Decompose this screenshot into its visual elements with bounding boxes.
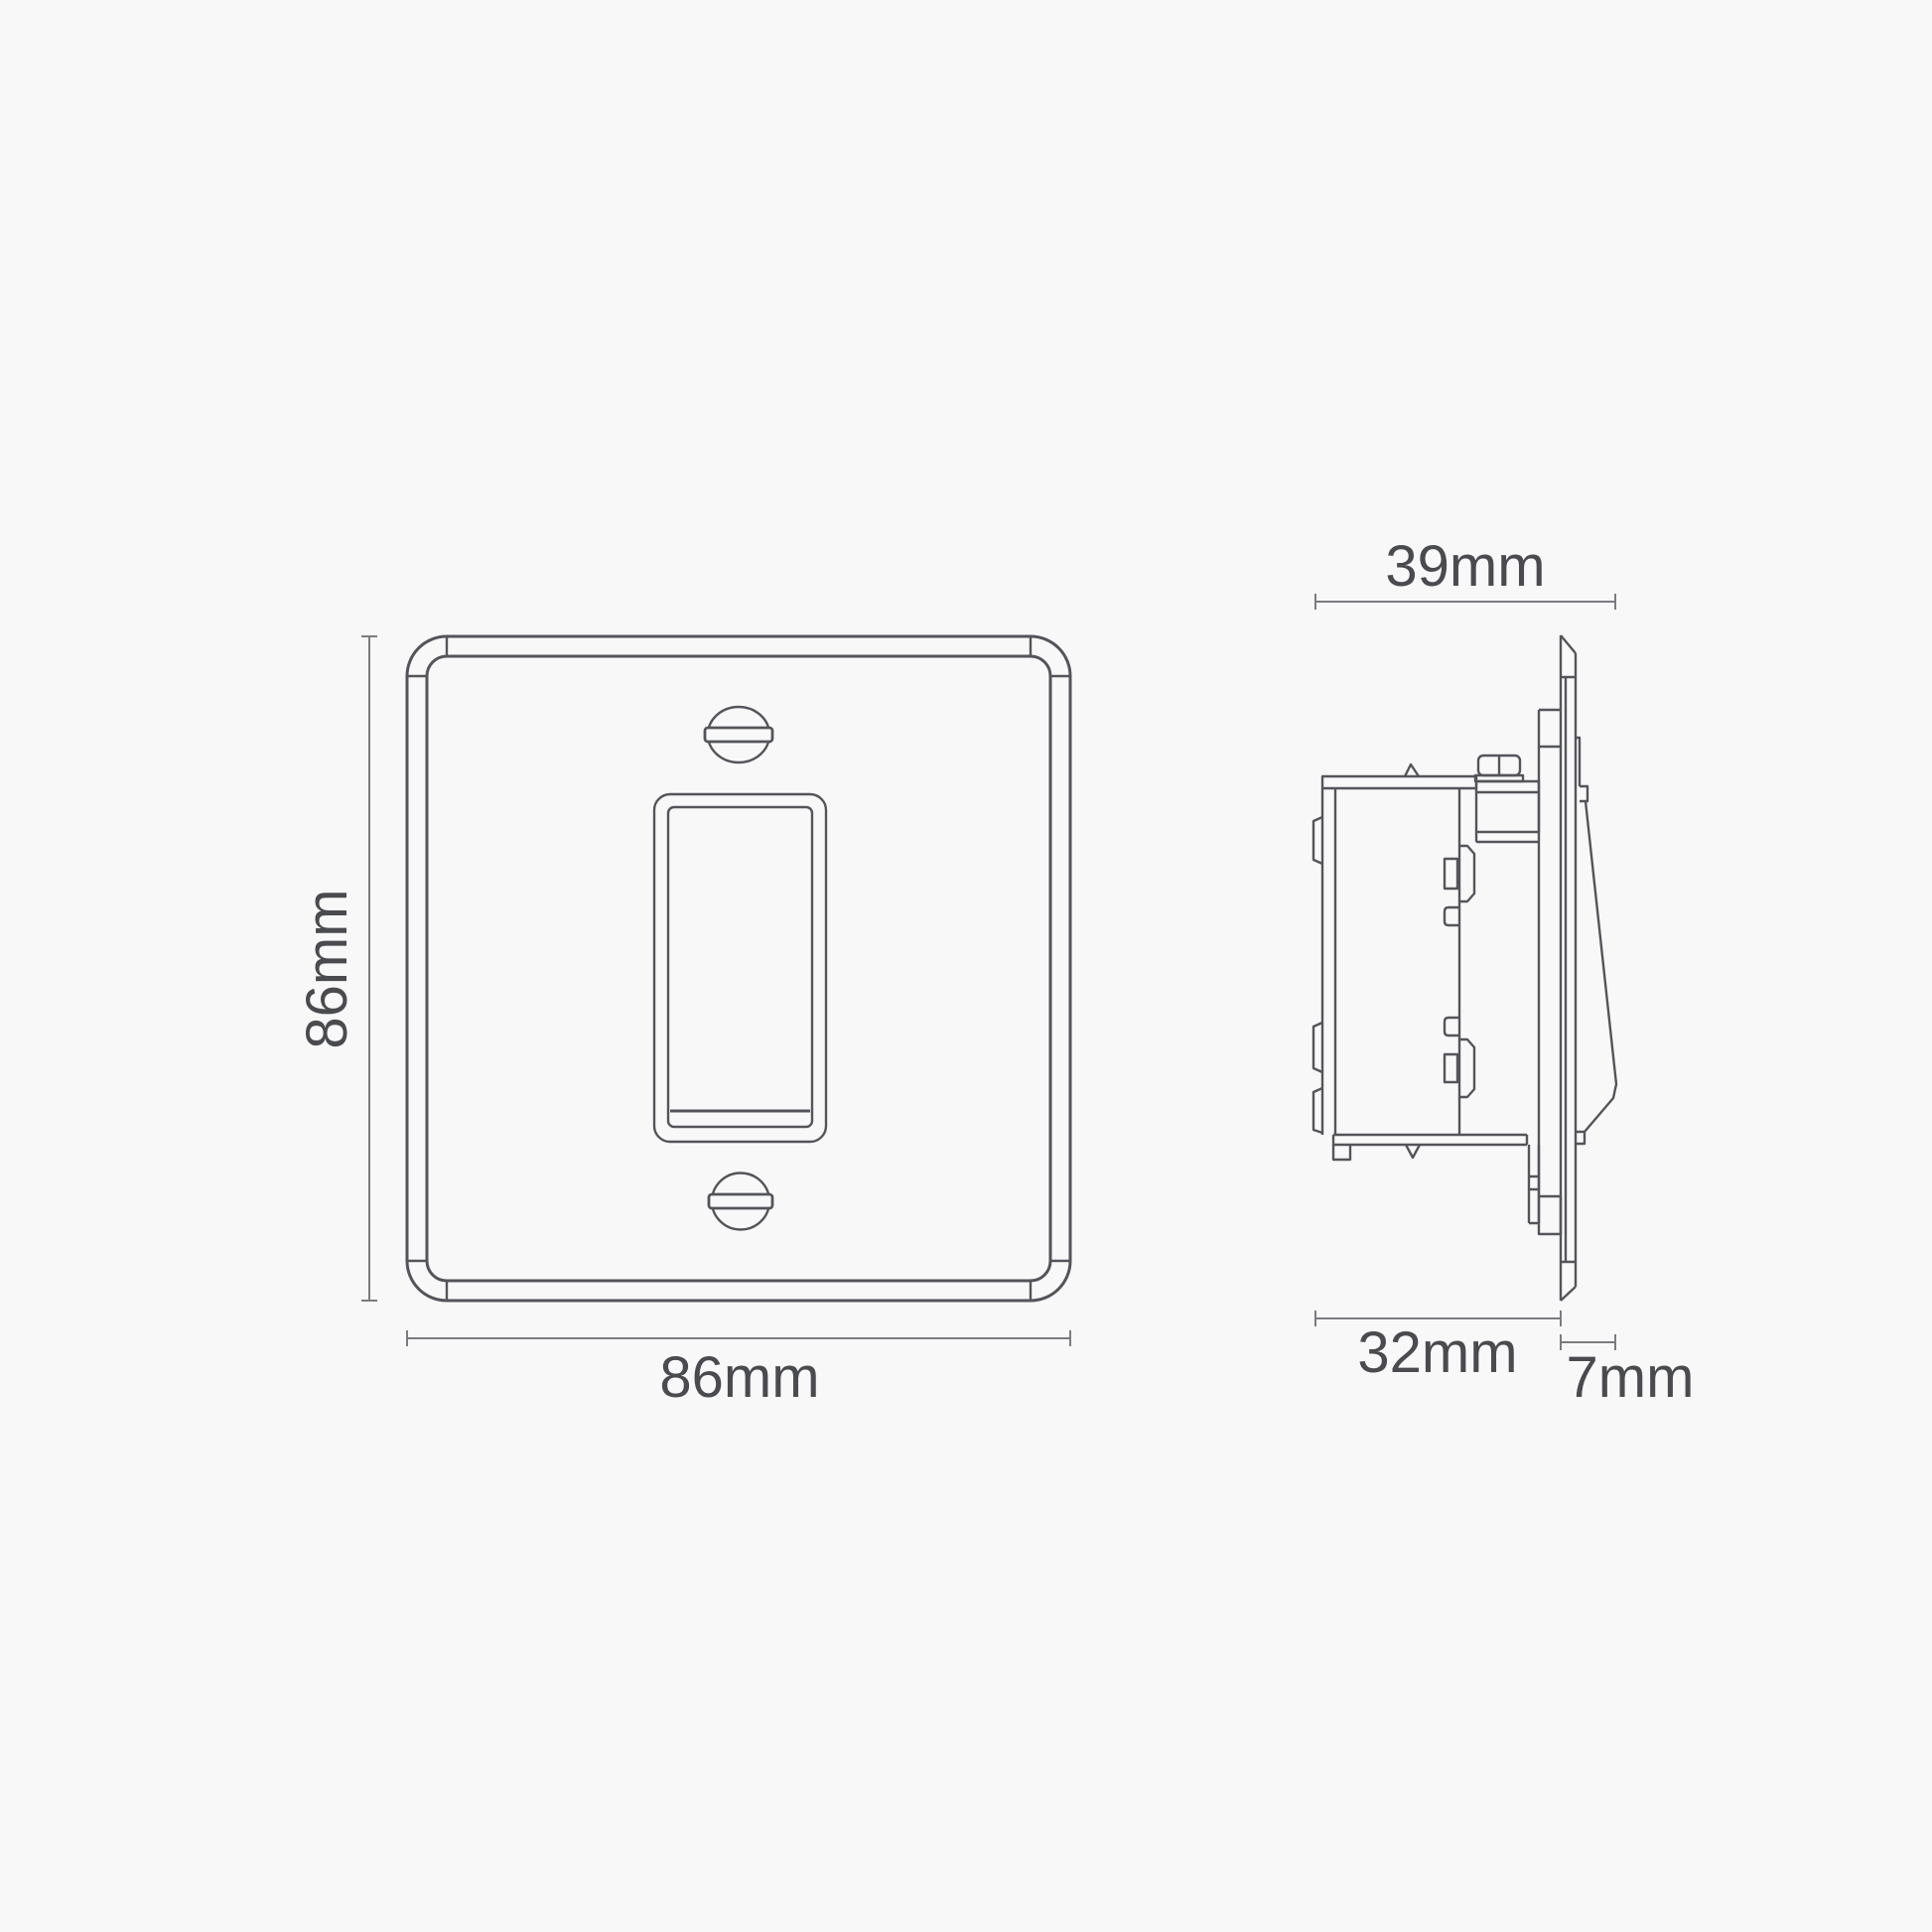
box-body	[1322, 788, 1459, 1135]
front-height-dimension-line	[361, 636, 377, 1301]
side-yoke	[1529, 710, 1561, 1234]
upper-lug-step	[1445, 859, 1457, 889]
yoke-bottom-foot	[1539, 1196, 1561, 1234]
side-rocker-profile	[1576, 738, 1616, 1144]
side-faceplate-profile	[1561, 635, 1576, 1301]
front-width-dimension: 86mm	[407, 1330, 1070, 1410]
side-mounting-box	[1313, 764, 1527, 1160]
dimension-diagram: 86mm 86mm	[0, 0, 1932, 1932]
front-height-label: 86mm	[295, 889, 359, 1048]
side-rocker	[1576, 738, 1616, 1144]
side-width-label: 39mm	[1385, 534, 1545, 599]
yoke-bottom-leg	[1529, 1145, 1539, 1223]
lower-lug-tab	[1459, 1039, 1474, 1097]
upper-lug-tab	[1459, 846, 1474, 901]
rocker-paddle	[668, 807, 812, 1127]
bottom-screw-slot	[709, 1194, 772, 1208]
side-view	[1313, 635, 1616, 1301]
rocker-switch	[654, 794, 826, 1142]
front-view	[407, 636, 1070, 1301]
side-faceplate	[1561, 635, 1576, 1301]
top-screw	[705, 707, 772, 762]
upper-lug-clip	[1445, 907, 1459, 925]
diagram-svg: 86mm 86mm	[0, 0, 1932, 1932]
box-bottom-hook	[1406, 1145, 1420, 1158]
bottom-screw	[709, 1173, 772, 1230]
side-projection-dimension: 7mm	[1561, 1334, 1694, 1410]
faceplate-inner-face	[427, 656, 1050, 1281]
front-width-dimension-line	[407, 1330, 1070, 1346]
yoke-strip	[1539, 710, 1561, 1196]
side-box-depth-dimension: 32mm	[1315, 1311, 1561, 1385]
front-width-label: 86mm	[659, 1345, 819, 1410]
box-side-clips	[1313, 817, 1322, 1133]
side-terminal-block	[1476, 781, 1539, 832]
box-top-flange	[1322, 776, 1476, 788]
side-width-dimension: 39mm	[1315, 534, 1615, 610]
side-terminal-block-lines	[1476, 792, 1539, 842]
side-screw-assembly	[1475, 756, 1539, 842]
front-height-dimension: 86mm	[295, 636, 377, 1301]
box-top-hook	[1405, 764, 1419, 776]
lower-lug-clip	[1445, 1018, 1459, 1035]
lower-lug-step	[1445, 1054, 1457, 1082]
box-bottom-flange	[1333, 1135, 1527, 1160]
rocker-bezel	[654, 794, 826, 1142]
top-screw-slot	[705, 728, 772, 742]
side-projection-label: 7mm	[1567, 1345, 1695, 1410]
side-box-depth-label: 32mm	[1357, 1320, 1517, 1385]
